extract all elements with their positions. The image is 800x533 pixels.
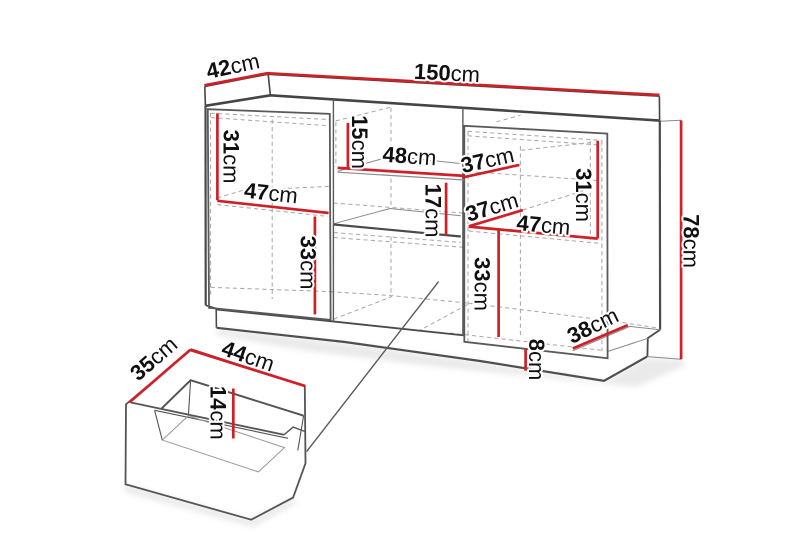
svg-text:17cm: 17cm: [421, 184, 446, 238]
svg-text:33cm: 33cm: [470, 257, 495, 311]
svg-text:8cm: 8cm: [524, 339, 549, 381]
svg-text:150cm: 150cm: [413, 59, 480, 87]
svg-text:15cm: 15cm: [347, 115, 372, 169]
svg-text:47cm: 47cm: [516, 210, 572, 240]
svg-text:31cm: 31cm: [219, 130, 244, 184]
svg-text:14cm: 14cm: [206, 386, 231, 440]
svg-text:48cm: 48cm: [382, 142, 437, 171]
svg-text:31cm: 31cm: [571, 168, 596, 222]
svg-text:33cm: 33cm: [296, 236, 321, 290]
svg-text:78cm: 78cm: [679, 214, 704, 268]
